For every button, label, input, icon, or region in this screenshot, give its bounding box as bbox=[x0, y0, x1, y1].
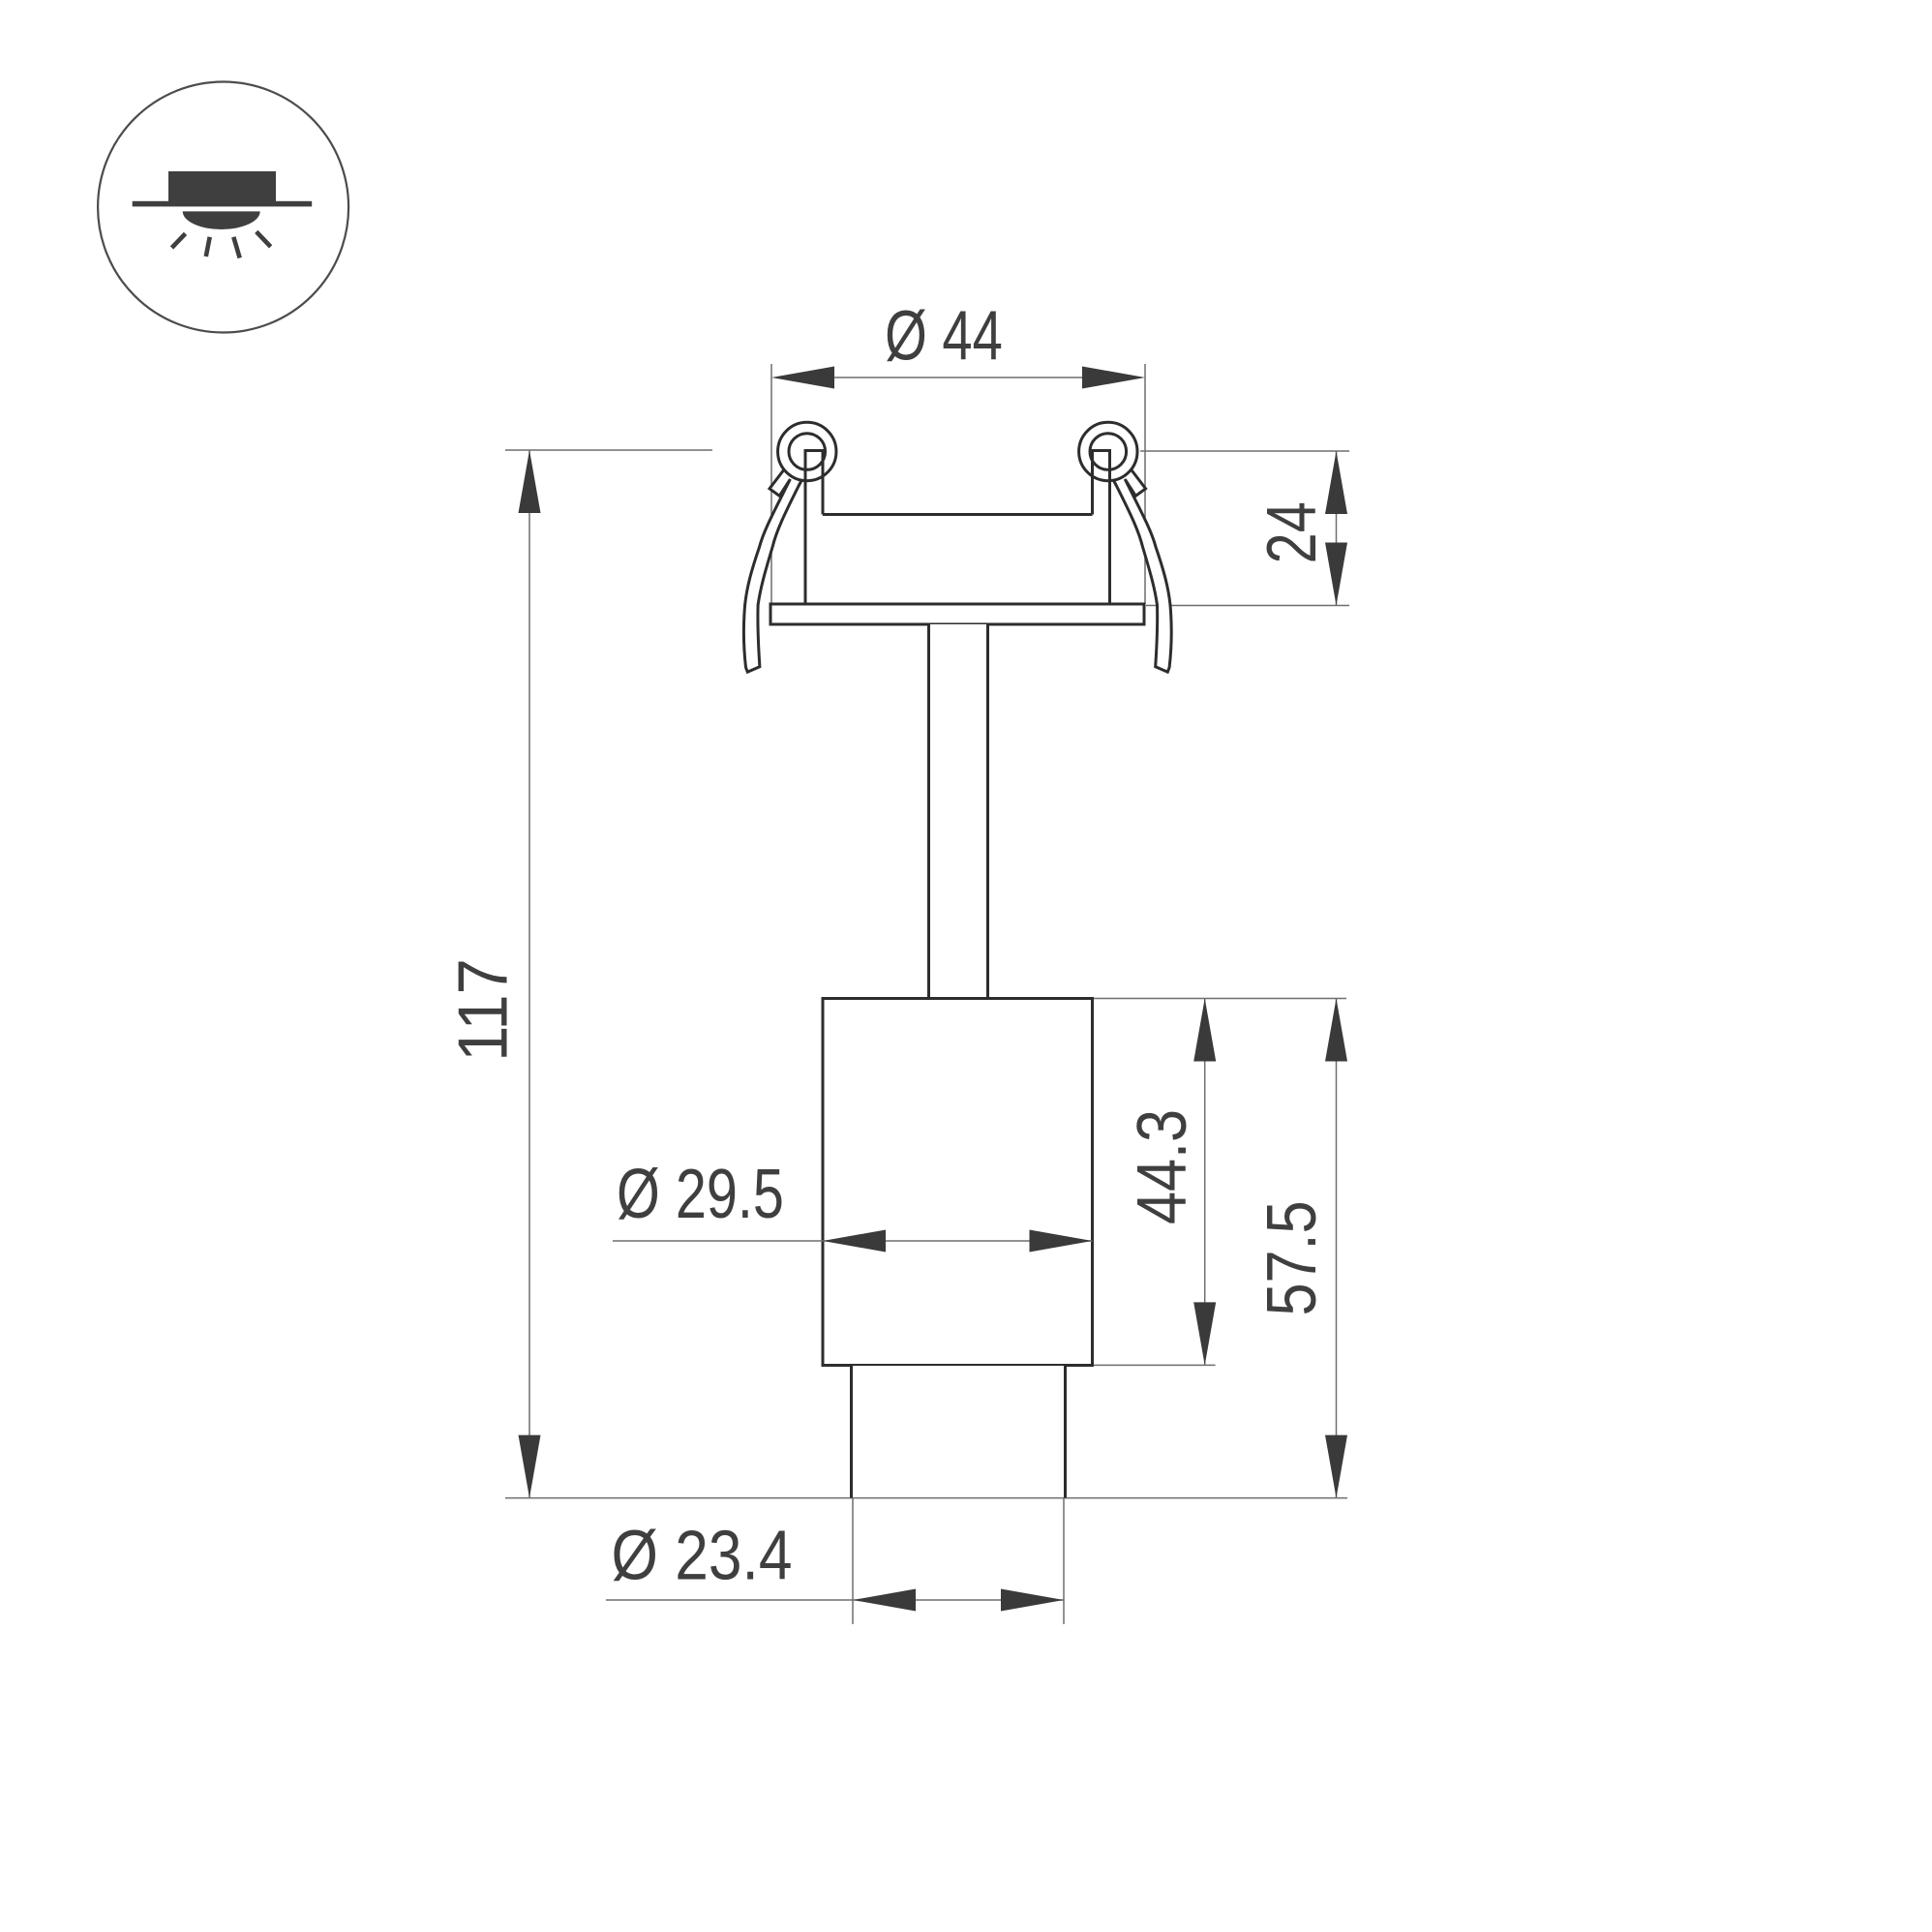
svg-text:Ø 23.4: Ø 23.4 bbox=[612, 1517, 793, 1594]
svg-text:117: 117 bbox=[443, 958, 522, 1062]
svg-text:44.3: 44.3 bbox=[1124, 1109, 1201, 1224]
svg-text:Ø 44: Ø 44 bbox=[885, 297, 1003, 375]
svg-text:57.5: 57.5 bbox=[1253, 1200, 1331, 1315]
svg-text:Ø 29.5: Ø 29.5 bbox=[617, 1155, 784, 1233]
svg-text:24: 24 bbox=[1253, 501, 1331, 563]
